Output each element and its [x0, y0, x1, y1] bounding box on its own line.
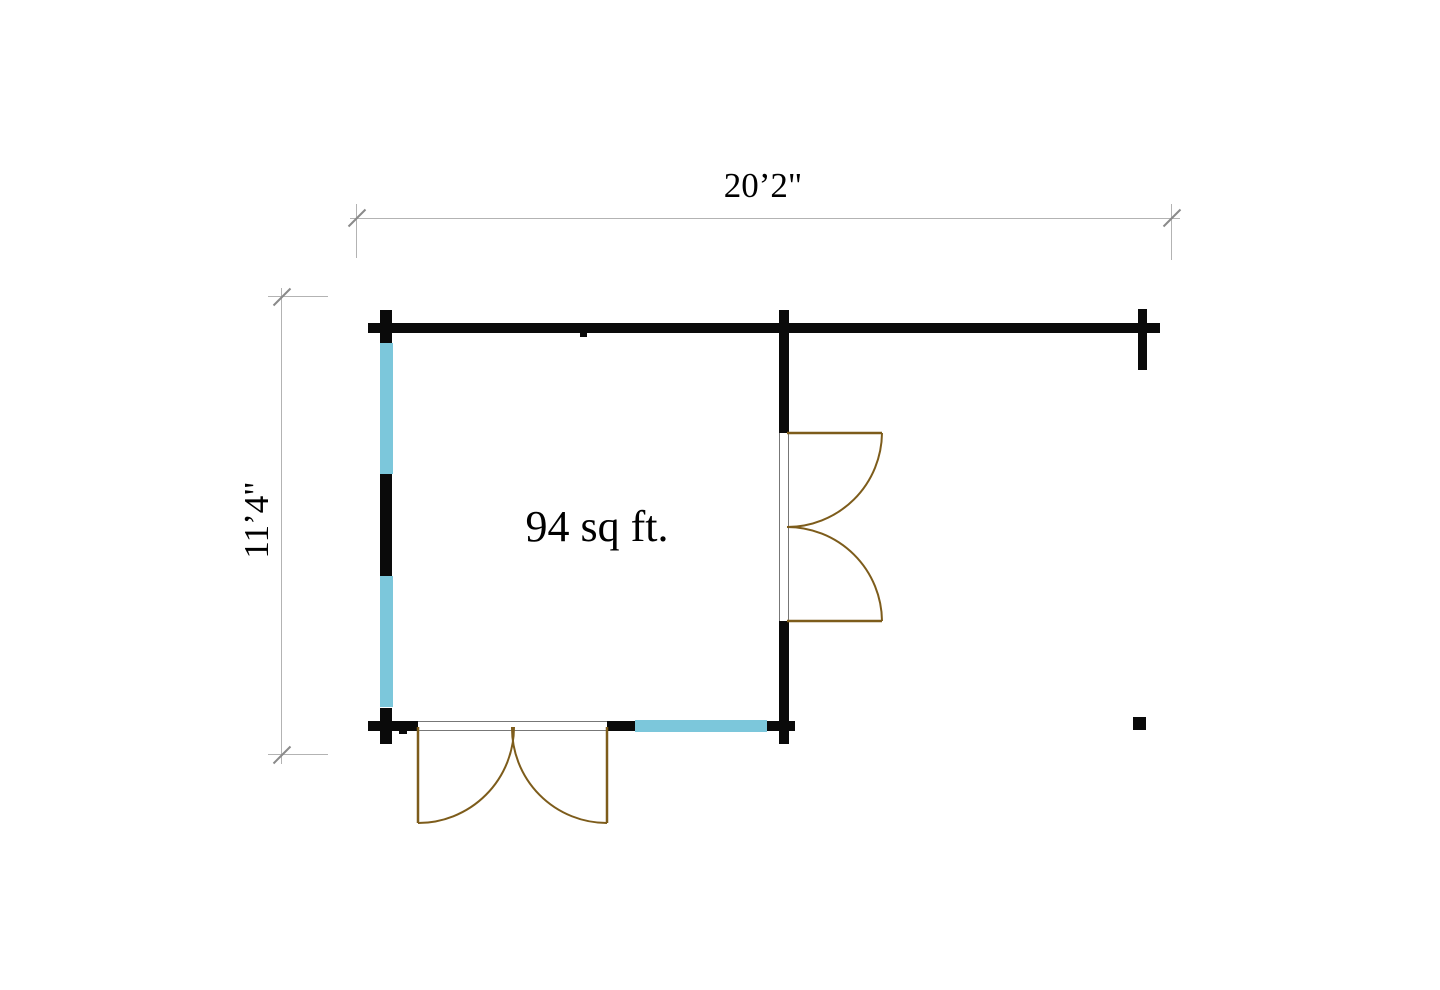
door-swings-layer [0, 0, 1440, 990]
floor-plan-canvas: 20’2" 11’4" 94 sq ft. [0, 0, 1440, 990]
room-area-label: 94 sq ft. [447, 501, 747, 552]
door-swing-arc-right-bottom [787, 527, 882, 621]
door-swing-arc-bottom-left [418, 727, 514, 823]
door-swing-arc-right-top [787, 433, 882, 527]
door-swing-arc-bottom-right [512, 727, 607, 823]
